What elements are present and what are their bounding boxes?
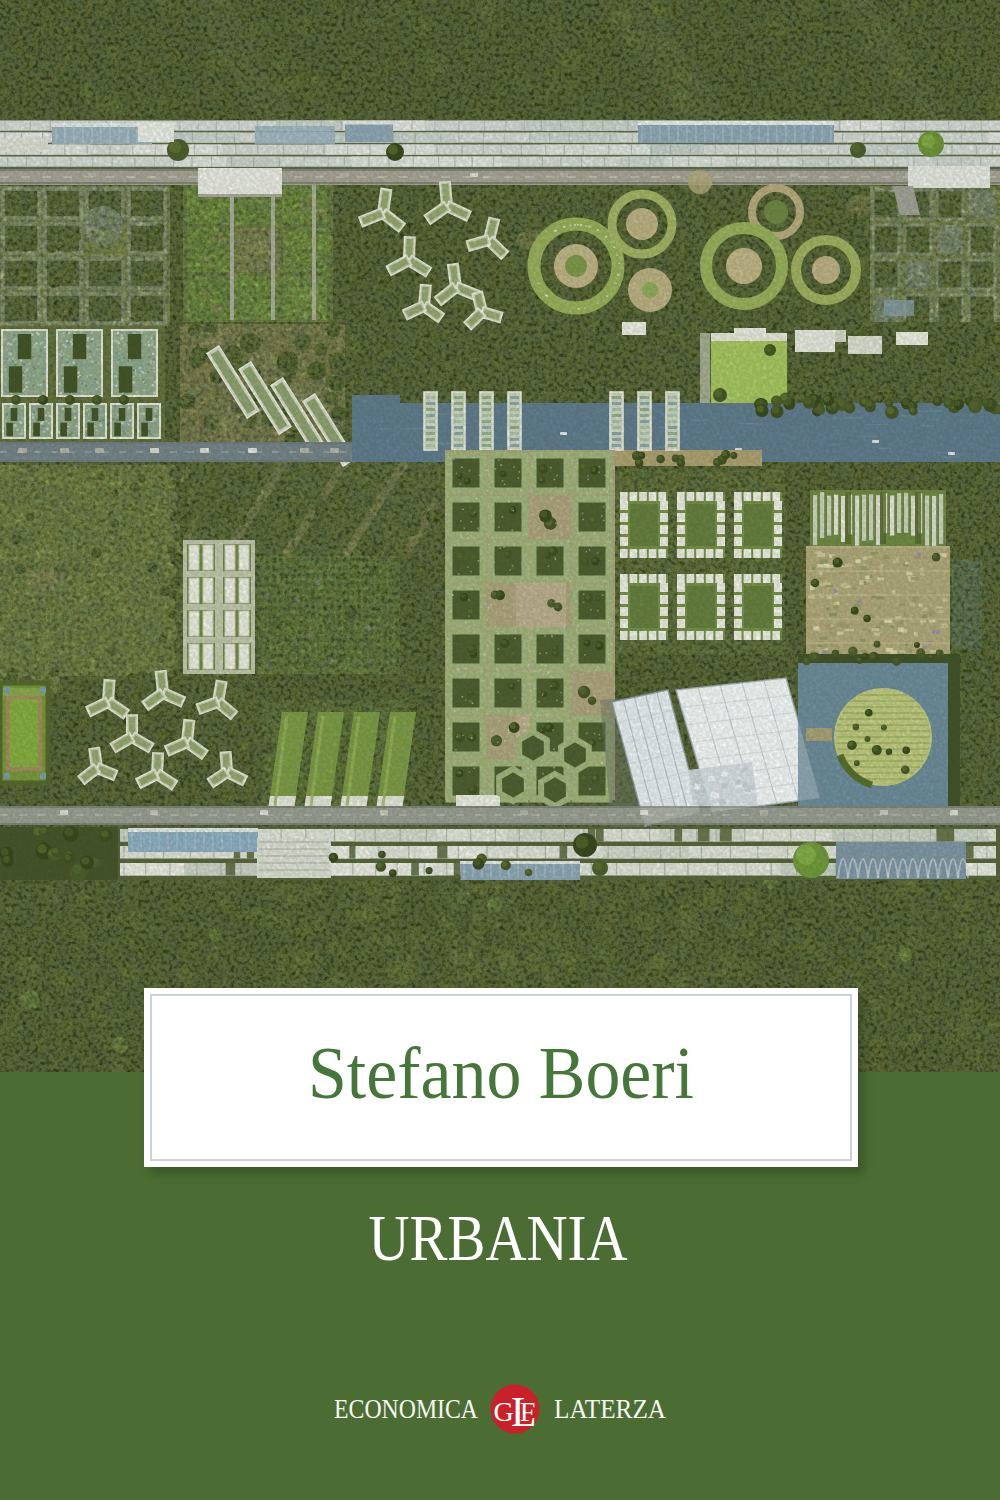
svg-text:Stefano Boeri: Stefano Boeri (308, 1031, 694, 1114)
svg-text:ECONOMICA: ECONOMICA (334, 1394, 478, 1424)
svg-text:L: L (511, 1389, 537, 1435)
svg-text:LATERZA: LATERZA (554, 1394, 666, 1424)
svg-text:URBANIA: URBANIA (369, 1201, 628, 1274)
